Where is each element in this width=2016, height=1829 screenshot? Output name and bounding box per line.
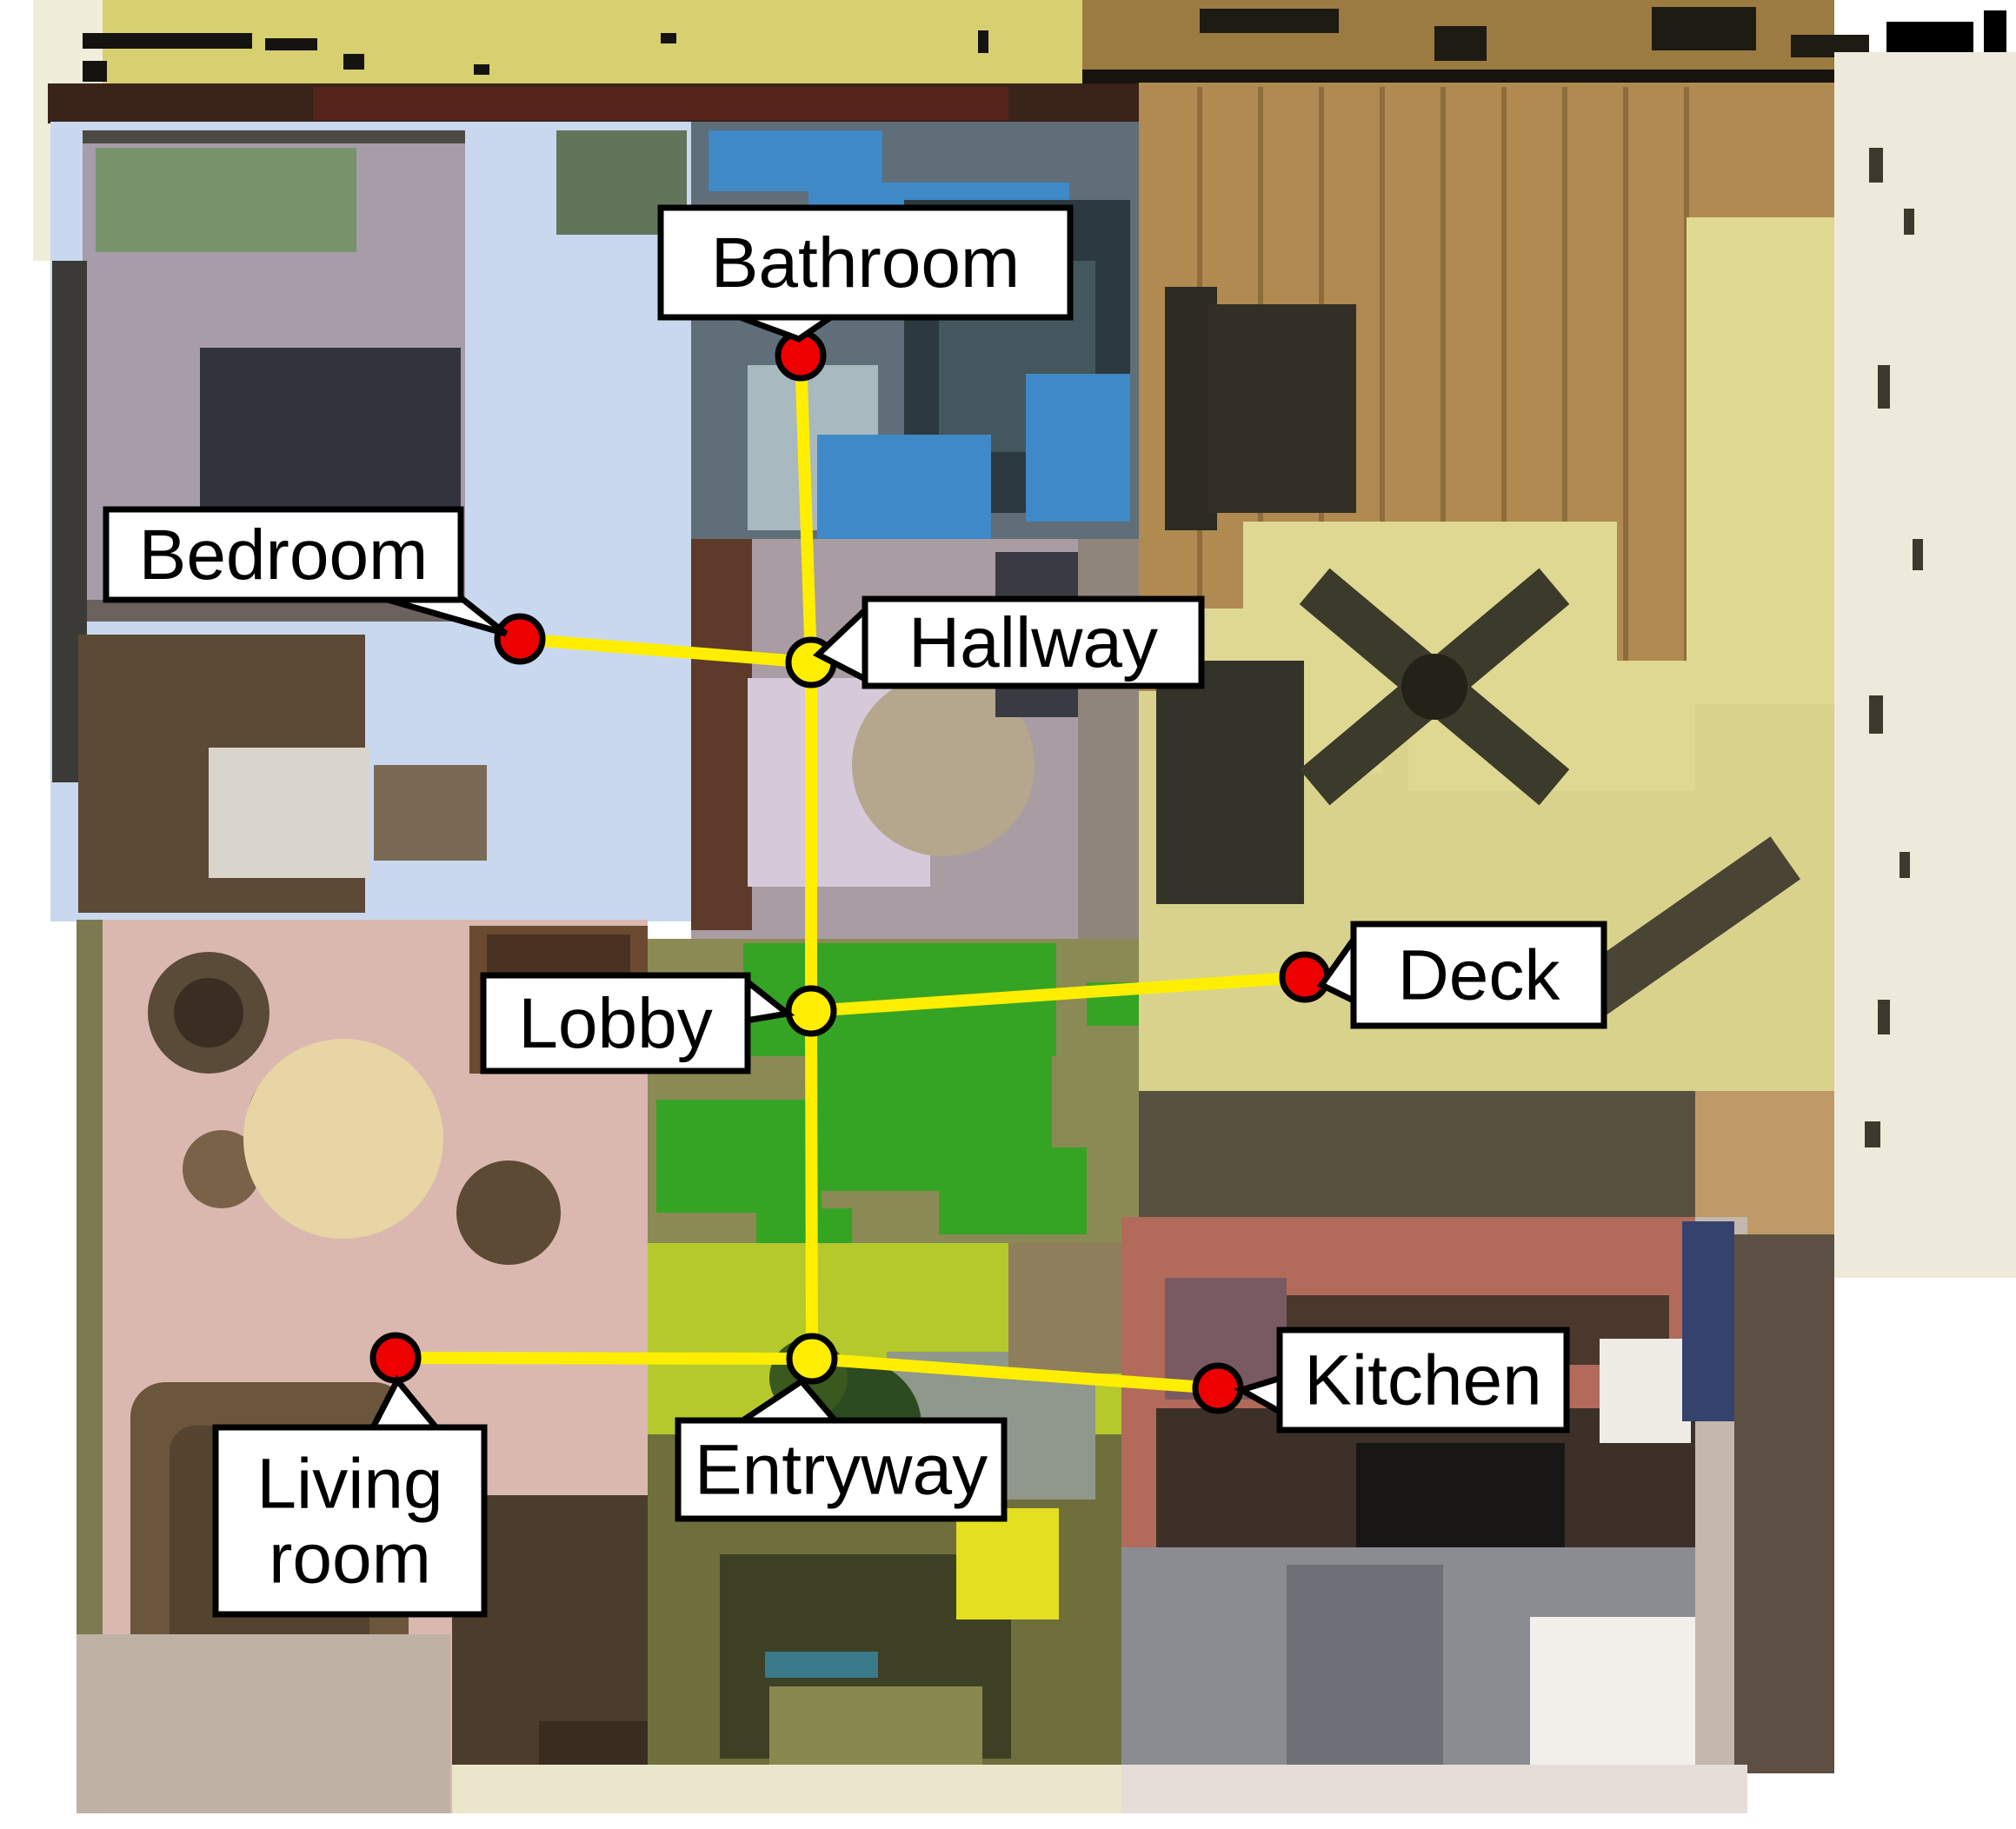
pointcloud-deck bbox=[1130, 83, 1834, 1243]
noise-dot bbox=[343, 54, 364, 70]
speaker-dark bbox=[1156, 661, 1304, 904]
wall-line bbox=[1082, 70, 1834, 83]
noise-dot bbox=[978, 30, 988, 53]
table-blob bbox=[456, 1161, 561, 1265]
noise-dash bbox=[1865, 1121, 1880, 1147]
blue-patch bbox=[817, 435, 991, 539]
node-deck bbox=[1282, 954, 1327, 1000]
noise-dash bbox=[1878, 365, 1890, 409]
noise-dash bbox=[1904, 209, 1914, 235]
floor-light bbox=[77, 1634, 450, 1813]
round-rug bbox=[243, 1039, 443, 1239]
green-patch bbox=[656, 1100, 822, 1213]
noise-dash bbox=[1878, 1000, 1890, 1034]
speaker-dark bbox=[1208, 304, 1356, 513]
blue-patch bbox=[1026, 374, 1130, 522]
noise-dash bbox=[1869, 148, 1883, 183]
noise-dash bbox=[1869, 695, 1883, 734]
noise-dash bbox=[265, 38, 317, 50]
teal-mark bbox=[765, 1652, 878, 1678]
node-bedroom bbox=[497, 616, 542, 662]
callout-label-bathroom: Bathroom bbox=[711, 223, 1021, 303]
blue-patch bbox=[709, 130, 882, 191]
noise-dash bbox=[83, 33, 252, 49]
green-patch bbox=[939, 1147, 1087, 1234]
node-living-room bbox=[373, 1335, 418, 1380]
bottom-strip bbox=[1121, 1765, 1747, 1813]
node-kitchen bbox=[1195, 1366, 1241, 1411]
floor-streak bbox=[1287, 1565, 1443, 1765]
counter-white bbox=[1600, 1339, 1691, 1443]
window-blue bbox=[1682, 1221, 1734, 1421]
callout-label-hallway: Hallway bbox=[908, 603, 1158, 682]
noise-dot bbox=[474, 64, 489, 75]
edge-entryway-living-room bbox=[396, 1358, 812, 1359]
semantic-patch bbox=[1687, 217, 1834, 704]
pointcloud-kitchen bbox=[1121, 1217, 1834, 1813]
noise-dot bbox=[83, 61, 107, 82]
right-dark-edge bbox=[1734, 1234, 1834, 1773]
callout-label-deck: Deck bbox=[1398, 935, 1561, 1014]
side-table bbox=[374, 765, 487, 861]
fan-hub bbox=[1401, 654, 1467, 720]
chair-inner bbox=[174, 978, 243, 1048]
wood-mark bbox=[1200, 9, 1339, 33]
dresser-white bbox=[209, 748, 369, 878]
edge-lobby-entryway bbox=[811, 1011, 812, 1359]
brown-corner bbox=[1008, 1243, 1121, 1373]
noise-dot bbox=[661, 33, 676, 43]
noise-dash bbox=[1900, 852, 1910, 878]
scene-graph-floorplan-figure: BathroomBedroomHallwayLobbyDeckLivingroo… bbox=[0, 0, 2016, 1829]
wood-mark bbox=[1652, 7, 1756, 50]
callout-label-bedroom: Bedroom bbox=[139, 515, 429, 595]
pointcloud-right-margin bbox=[1834, 52, 2016, 1278]
wood-mark bbox=[1434, 26, 1487, 61]
red-beam bbox=[313, 87, 1008, 120]
floorplan-canvas: BathroomBedroomHallwayLobbyDeckLivingroo… bbox=[0, 0, 2016, 1829]
callout-label-kitchen: Kitchen bbox=[1304, 1340, 1542, 1420]
callout-label-entryway: Entryway bbox=[695, 1430, 988, 1509]
callout-label-living-room: Livingroom bbox=[256, 1444, 442, 1598]
pointcloud-bathroom bbox=[691, 122, 1139, 539]
pillows bbox=[96, 148, 356, 252]
callout-label-lobby: Lobby bbox=[518, 984, 712, 1063]
node-entryway bbox=[789, 1336, 835, 1381]
brick-strip bbox=[691, 539, 752, 930]
margin-cream bbox=[1834, 52, 2016, 1278]
bottom-strip bbox=[452, 1765, 1121, 1813]
noise-dash bbox=[1913, 539, 1923, 570]
yellow-door bbox=[956, 1508, 1059, 1619]
node-lobby bbox=[788, 988, 834, 1034]
